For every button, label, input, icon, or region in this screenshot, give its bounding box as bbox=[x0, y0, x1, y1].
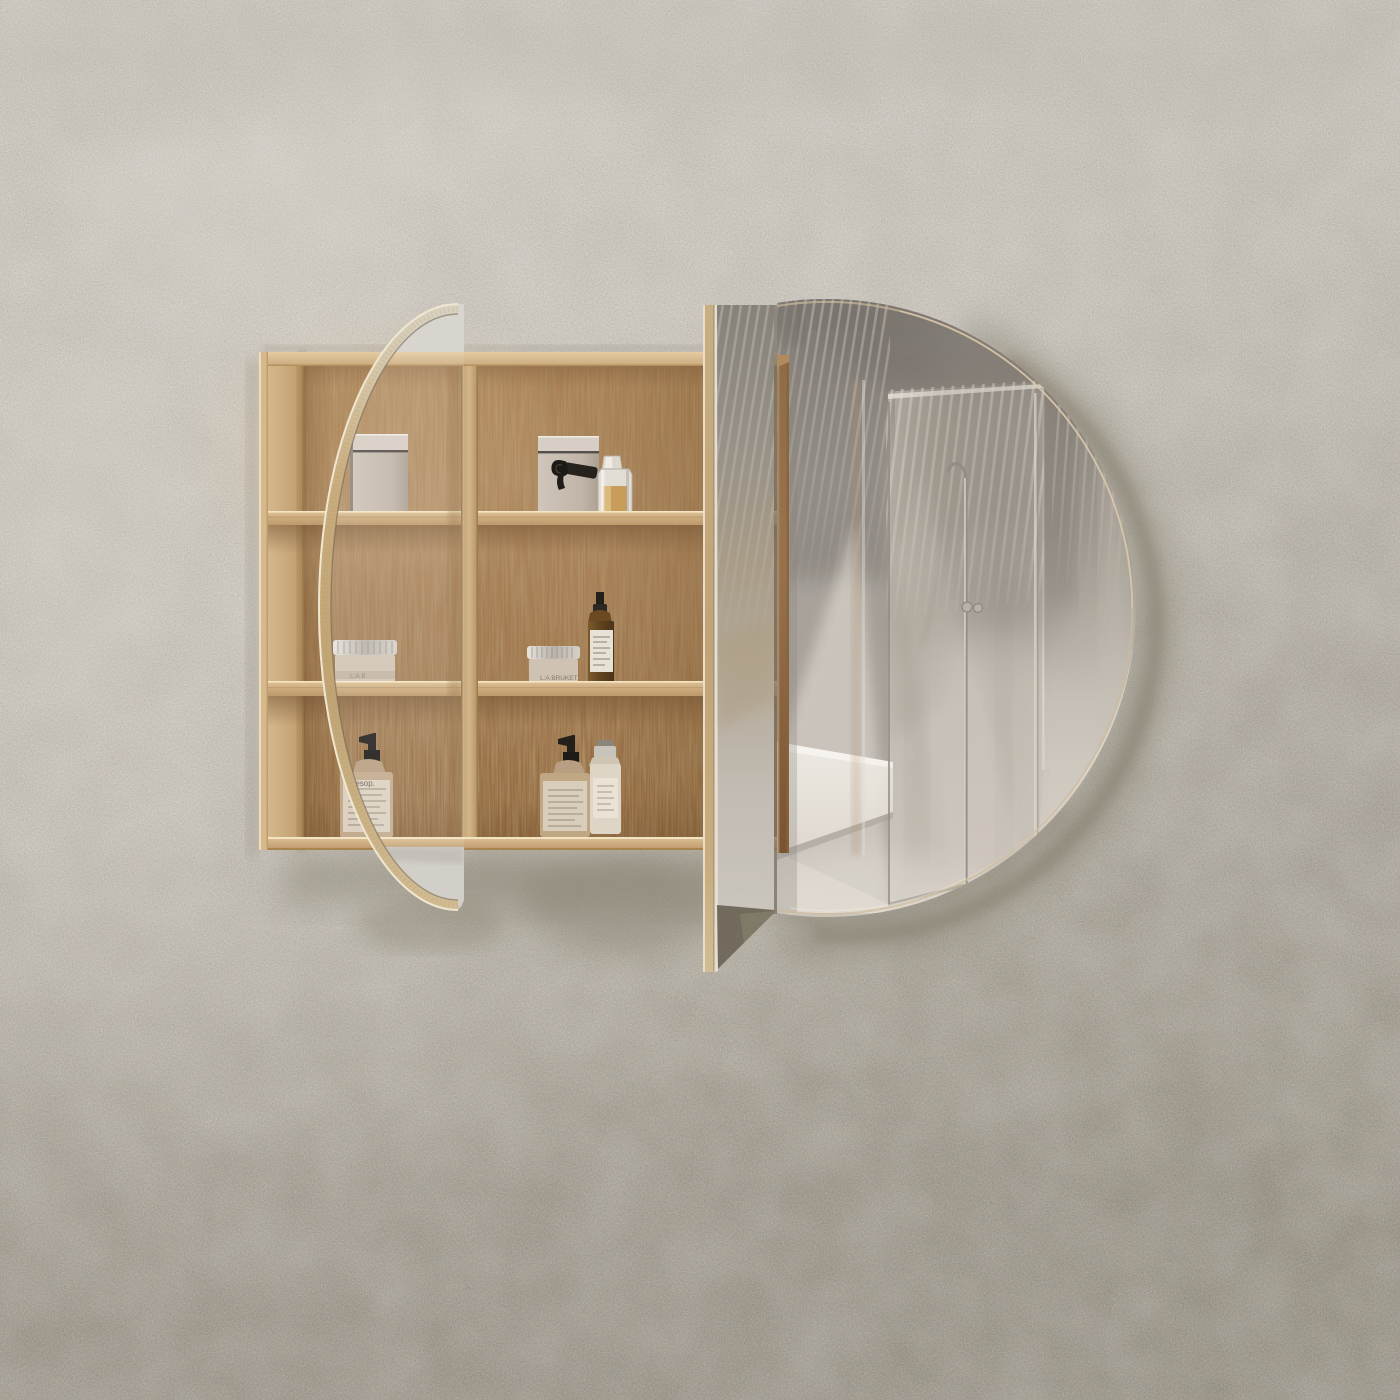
svg-text:L:A BRUKET: L:A BRUKET bbox=[540, 675, 578, 682]
